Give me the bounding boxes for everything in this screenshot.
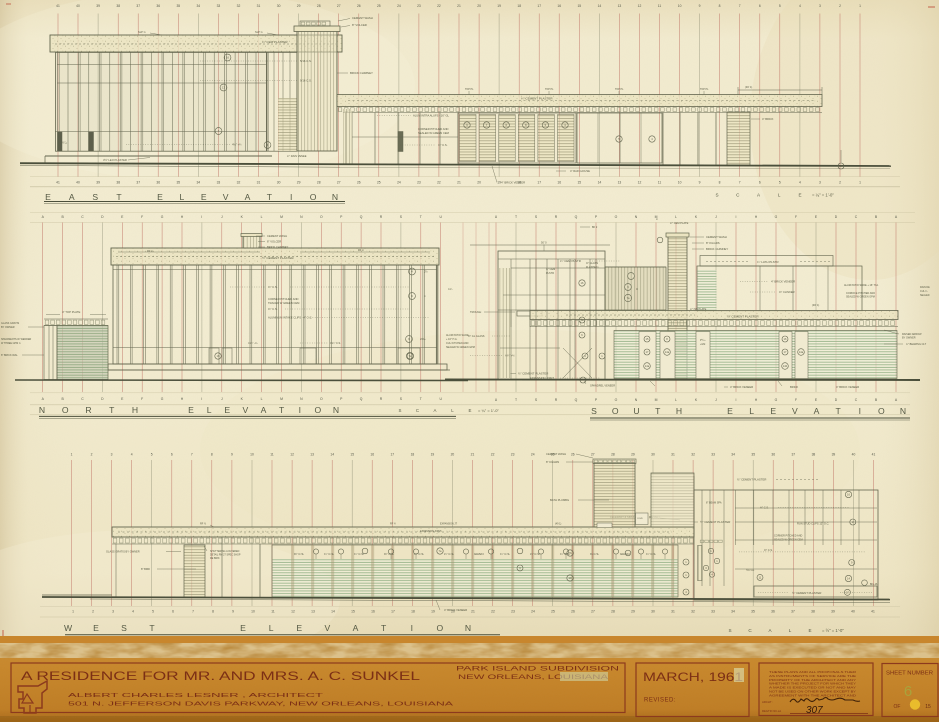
svg-text:½" CEMENT PLASTER: ½" CEMENT PLASTER — [262, 256, 294, 260]
svg-text:18: 18 — [411, 453, 415, 457]
svg-text:40: 40 — [76, 4, 80, 8]
svg-text:14a: 14a — [645, 364, 650, 368]
svg-text:11: 11 — [658, 4, 662, 8]
svg-text:5/16 C.S.: 5/16 C.S. — [300, 59, 312, 63]
svg-text:13: 13 — [310, 453, 314, 457]
svg-text:I: I — [859, 406, 861, 416]
svg-text:= ¼" = 1’-0": = ¼" = 1’-0" — [812, 193, 834, 198]
svg-text:35: 35 — [751, 453, 755, 457]
svg-text:I: I — [736, 215, 737, 219]
svg-text:¾" CEM PLASTER: ¾" CEM PLASTER — [262, 40, 288, 44]
svg-text:40: 40 — [852, 453, 856, 457]
svg-text:¼" ISN PLATE: ¼" ISN PLATE — [690, 308, 707, 311]
svg-text:14: 14 — [331, 610, 335, 614]
svg-text:9: 9 — [232, 610, 234, 614]
svg-text:21: 21 — [471, 610, 475, 614]
svg-text:6: 6 — [759, 181, 761, 185]
svg-text:L: L — [180, 192, 185, 202]
svg-text:E: E — [93, 623, 99, 633]
svg-text:27: 27 — [337, 4, 341, 8]
svg-text:⅜" CLINKER: ⅜" CLINKER — [779, 290, 795, 294]
svg-text:27: 27 — [591, 610, 595, 614]
svg-text:+GM: +GM — [700, 343, 705, 346]
svg-text:G: G — [775, 215, 778, 219]
svg-text:5: 5 — [779, 4, 781, 8]
svg-text:35: 35 — [751, 610, 755, 614]
svg-text:19: 19 — [431, 453, 435, 457]
svg-text:20: 20 — [451, 453, 455, 457]
svg-text:8: 8 — [212, 610, 214, 614]
svg-text:T: T — [279, 405, 285, 415]
svg-text:14: 14 — [598, 4, 602, 8]
svg-text:20: 20 — [477, 4, 481, 8]
svg-text:4: 4 — [132, 610, 134, 614]
svg-text:¼" RAIN VENEE: ¼" RAIN VENEE — [287, 154, 307, 158]
svg-text:T: T — [515, 398, 517, 402]
svg-text:⅜" GL GLASS: ⅜" GL GLASS — [468, 334, 485, 338]
svg-text:T: T — [116, 192, 122, 202]
svg-text:38: 38 — [812, 453, 816, 457]
svg-text:O: O — [437, 623, 444, 633]
svg-text:28: 28 — [611, 453, 615, 457]
svg-text:4" TOP PLATE: 4" TOP PLATE — [62, 310, 80, 314]
svg-text:31: 31 — [671, 453, 675, 457]
svg-text:⅜" C.S.: ⅜" C.S. — [268, 307, 278, 311]
svg-text:E: E — [798, 193, 801, 198]
svg-text:4" RAIN HOUSE: 4" RAIN HOUSE — [570, 169, 590, 173]
svg-text:N: N — [465, 623, 471, 633]
svg-text:¾" C.S.: ¾" C.S. — [324, 552, 334, 556]
svg-text:307: 307 — [806, 705, 823, 716]
svg-text:E: E — [727, 406, 733, 416]
svg-text:34: 34 — [731, 453, 735, 457]
svg-text:¾¼" –¼: ¾¼" –¼ — [248, 341, 258, 345]
svg-text:J: J — [221, 397, 223, 401]
svg-text:2: 2 — [91, 453, 93, 457]
svg-text:L: L — [207, 405, 212, 415]
svg-text:A: A — [434, 408, 437, 413]
svg-text:17: 17 — [391, 610, 395, 614]
svg-text:31: 31 — [257, 4, 261, 8]
svg-text:⅜: ⅜ — [636, 288, 638, 291]
svg-text:3: 3 — [111, 453, 113, 457]
svg-text:17: 17 — [537, 181, 541, 185]
svg-text:31: 31 — [671, 610, 675, 614]
svg-text:33: 33 — [217, 181, 221, 185]
svg-text:31: 31 — [257, 181, 261, 185]
svg-text:ARCHT :: ARCHT : — [762, 700, 773, 704]
svg-text:EXPANSION JT: EXPANSION JT — [440, 523, 458, 526]
svg-text:36: 36 — [156, 181, 160, 185]
svg-text:RUN STUD CLIPS 12" O.C.: RUN STUD CLIPS 12" O.C. — [797, 522, 829, 526]
svg-text:4½" +¼: 4½" +¼ — [232, 143, 242, 147]
svg-text:⅜" C.S.: ⅜" C.S. — [294, 552, 304, 556]
svg-text:FLASHED ⁿ: FLASHED ⁿ — [586, 265, 599, 269]
svg-text:⅜ C.S.: ⅜ C.S. — [590, 552, 599, 556]
svg-text:BRICK CHIMNEY: BRICK CHIMNEY — [350, 71, 373, 75]
svg-text:T: T — [420, 215, 422, 219]
svg-text:29: 29 — [631, 453, 635, 457]
svg-text:A: A — [261, 405, 267, 415]
svg-text:13: 13 — [311, 610, 315, 614]
svg-text:37: 37 — [791, 453, 795, 457]
svg-text:2: 2 — [92, 610, 94, 614]
svg-text:GRAIN: GRAIN — [474, 552, 484, 556]
svg-text:39: 39 — [96, 181, 100, 185]
svg-text:BY OWNER: BY OWNER — [902, 337, 916, 340]
svg-text:L: L — [778, 193, 781, 198]
svg-text:F: F — [795, 398, 797, 402]
svg-text:14a: 14a — [799, 350, 804, 354]
svg-text:THESE PLANS AND ALL PROPOSALS: THESE PLANS AND ALL PROPOSALS THER — [769, 670, 856, 674]
svg-text:ALBERT CHARLES LESNER ,: ALBERT CHARLES LESNER , ARCHITECT — [68, 693, 325, 699]
svg-text:T: T — [381, 623, 387, 633]
svg-text:MARCH, 1961: MARCH, 1961 — [643, 670, 743, 684]
svg-text:SEALED: SEALED — [920, 294, 930, 297]
svg-text:25: 25 — [551, 610, 555, 614]
svg-text:BF 2: BF 2 — [592, 226, 598, 229]
svg-text:11: 11 — [270, 453, 274, 457]
svg-text:E: E — [469, 408, 472, 413]
svg-text:N: N — [332, 192, 338, 202]
svg-text:501 N. JEFFERSON DAVIS: 501 N. JEFFERSON DAVIS PARKWAY, NEW ORLE… — [68, 702, 454, 708]
svg-text:⅜" C.S.: ⅜" C.S. — [760, 506, 769, 510]
svg-text:I: I — [290, 192, 292, 202]
svg-text:SEALED W GREEN GPM: SEALED W GREEN GPM — [446, 346, 475, 349]
svg-text:BRICK CHIMNEY: BRICK CHIMNEY — [706, 247, 728, 251]
svg-text:U: U — [633, 406, 639, 416]
svg-text:8" BRICK WAL: 8" BRICK WAL — [1, 354, 18, 357]
svg-text:14a: 14a — [665, 350, 670, 354]
svg-text:BRICK: BRICK — [790, 385, 798, 389]
svg-text:I: I — [201, 215, 202, 219]
svg-text:41: 41 — [871, 610, 875, 614]
svg-text:S: S — [399, 408, 402, 413]
svg-text:30: 30 — [277, 4, 281, 8]
svg-text:NOT BE USED ON OTHER WORK EXCE: NOT BE USED ON OTHER WORK EXCEPT BY — [769, 690, 856, 694]
svg-text:32: 32 — [691, 610, 695, 614]
svg-text:E: E — [157, 192, 163, 202]
svg-text:1: 1 — [859, 181, 861, 185]
svg-text:4" BRICK VENEER: 4" BRICK VENEER — [836, 385, 859, 389]
svg-text:½" CEMENT PLASTER: ½" CEMENT PLASTER — [518, 372, 548, 376]
svg-text:E: E — [240, 623, 246, 633]
svg-text:SEALED W GREEN GPM: SEALED W GREEN GPM — [846, 296, 875, 299]
svg-text:BATH PLUMBG: BATH PLUMBG — [550, 498, 569, 502]
svg-text:T: T — [515, 215, 517, 219]
svg-text:11: 11 — [271, 610, 275, 614]
svg-text:H: H — [132, 405, 138, 415]
svg-text:J: J — [715, 398, 717, 402]
svg-text:ALUM PATIO SLIDE: ALUM PATIO SLIDE — [446, 334, 469, 337]
svg-text:19: 19 — [431, 610, 435, 614]
svg-text:17: 17 — [390, 453, 394, 457]
svg-text:⅜" C.S.: ⅜" C.S. — [764, 548, 773, 552]
svg-text:9: 9 — [699, 181, 701, 185]
svg-text:15: 15 — [577, 181, 581, 185]
svg-text:34: 34 — [196, 4, 200, 8]
svg-text:4: 4 — [799, 181, 801, 185]
svg-text:Q: Q — [360, 397, 363, 401]
svg-text:SPANDREL VENEER: SPANDREL VENEER — [590, 384, 615, 388]
svg-text:RF ½: RF ½ — [200, 522, 207, 526]
svg-text:23: 23 — [511, 453, 515, 457]
svg-text:24: 24 — [397, 4, 401, 8]
svg-text:29: 29 — [297, 181, 301, 185]
svg-text:2: 2 — [839, 181, 841, 185]
svg-text:G: G — [161, 397, 164, 401]
svg-text:9/16 C.S.: 9/16 C.S. — [300, 79, 312, 83]
svg-text:39: 39 — [96, 4, 100, 8]
svg-text:A MADE IS EXECUTED OR NOT AND: A MADE IS EXECUTED OR NOT AND MAY — [769, 686, 856, 690]
svg-text:12: 12 — [291, 610, 295, 614]
svg-text:16: 16 — [371, 610, 375, 614]
svg-text:7: 7 — [191, 453, 193, 457]
svg-text:5: 5 — [152, 610, 154, 614]
svg-text:⅜" GLASS: ⅜" GLASS — [586, 262, 598, 265]
svg-text:5: 5 — [151, 453, 153, 457]
svg-text:40: 40 — [851, 610, 855, 614]
svg-text:CUL ¼: CUL ¼ — [920, 290, 928, 293]
svg-text:4" BRICK: 4" BRICK — [762, 117, 774, 121]
svg-text:CORNER PITCHED AND: CORNER PITCHED AND — [418, 127, 449, 131]
svg-text:WHETHER THE PROJECT FOR WHICH: WHETHER THE PROJECT FOR WHICH THEY — [769, 682, 856, 686]
svg-text:¼" C.S.: ¼" C.S. — [444, 552, 454, 556]
svg-text:36: 36 — [156, 4, 160, 8]
svg-text:BY OWNER: BY OWNER — [1, 326, 15, 329]
svg-text:22: 22 — [491, 610, 495, 614]
svg-text:(49' 1): (49' 1) — [812, 303, 819, 307]
svg-text:RF ¼: RF ¼ — [147, 250, 154, 253]
svg-text:6: 6 — [759, 4, 761, 8]
svg-text:2: 2 — [839, 4, 841, 8]
svg-text:¼" CEM PLSTR: ¼" CEM PLSTR — [560, 259, 581, 263]
svg-text:39: 39 — [832, 453, 836, 457]
svg-text:37: 37 — [791, 610, 795, 614]
svg-text:30: 30 — [651, 453, 655, 457]
svg-text:G: G — [161, 215, 164, 219]
svg-text:26: 26 — [571, 453, 575, 457]
svg-text:F: F — [795, 215, 797, 219]
svg-text:L: L — [749, 406, 754, 416]
svg-text:E: E — [201, 192, 207, 202]
svg-text:V: V — [325, 623, 331, 633]
svg-text:21: 21 — [471, 453, 475, 457]
svg-text:8" VOLCER: 8" VOLCER — [352, 23, 367, 27]
svg-text:14: 14 — [330, 453, 334, 457]
svg-text:+ 16" H.A.: + 16" H.A. — [446, 338, 458, 341]
svg-text:TOP PL: TOP PL — [700, 88, 709, 91]
svg-text:50' 0: 50' 0 — [541, 241, 547, 245]
svg-text:½" CEMENT PLASTER: ½" CEMENT PLASTER — [792, 591, 821, 595]
svg-text:4" BRICK VENEER: 4" BRICK VENEER — [501, 181, 525, 185]
svg-text:16: 16 — [557, 181, 561, 185]
svg-text:12: 12 — [638, 4, 642, 8]
svg-text:T: T — [655, 406, 661, 416]
svg-text:29: 29 — [297, 4, 301, 8]
svg-text:¼" CEM: ¼" CEM — [546, 268, 555, 271]
svg-text:L: L — [675, 215, 677, 219]
svg-text:⅜" C.S.: ⅜" C.S. — [268, 285, 278, 289]
svg-text:Q: Q — [575, 398, 578, 402]
svg-text:CEMENT WASH: CEMENT WASH — [546, 452, 566, 456]
svg-text:26: 26 — [571, 610, 575, 614]
svg-text:41: 41 — [872, 453, 876, 457]
svg-text:SPECIMENTS W. WENDER: SPECIMENTS W. WENDER — [1, 338, 32, 341]
svg-text:37: 37 — [136, 181, 140, 185]
svg-text:A: A — [353, 623, 359, 633]
svg-text:T: T — [267, 192, 273, 202]
svg-text:8" KILGRS: 8" KILGRS — [706, 241, 720, 245]
svg-text:SHEET NUMBER: SHEET NUMBER — [886, 671, 933, 677]
svg-text:8" KILGRN: 8" KILGRN — [546, 460, 559, 464]
svg-text:SLP ¼: SLP ¼ — [138, 30, 147, 34]
svg-text:13: 13 — [618, 4, 622, 8]
svg-text:PLSTR: PLSTR — [546, 272, 554, 275]
svg-text:TROUGH: TROUGH — [470, 310, 481, 314]
svg-text:GRAIN: GRAIN — [620, 552, 630, 556]
svg-text:26: 26 — [357, 181, 361, 185]
svg-text:O: O — [615, 215, 618, 219]
svg-text:15: 15 — [351, 610, 355, 614]
svg-text:½" CEMENT PLASTER: ½" CEMENT PLASTER — [737, 478, 766, 482]
svg-text:REVISED:: REVISED: — [644, 698, 676, 704]
svg-text:28: 28 — [317, 4, 321, 8]
svg-text:23: 23 — [511, 610, 515, 614]
svg-text:F: F — [141, 397, 143, 401]
svg-text:M: M — [655, 398, 658, 402]
svg-text:12: 12 — [638, 181, 642, 185]
svg-text:33: 33 — [711, 610, 715, 614]
svg-text:7: 7 — [739, 181, 741, 185]
svg-text:11: 11 — [658, 181, 662, 185]
svg-text:V: V — [223, 192, 229, 202]
svg-text:¾" C.S.: ¾" C.S. — [500, 552, 510, 556]
svg-text:8" BEAM SPA: 8" BEAM SPA — [706, 502, 722, 505]
svg-text:4" BRICK VENEER: 4" BRICK VENEER — [444, 608, 467, 612]
svg-text:W THREE GPM ¾: W THREE GPM ¾ — [1, 342, 22, 345]
svg-text:24: 24 — [531, 453, 535, 457]
svg-text:TRACED W GREEN CEM: TRACED W GREEN CEM — [268, 301, 300, 305]
svg-text:30: 30 — [651, 610, 655, 614]
svg-text:⅜" C.S.: ⅜" C.S. — [384, 552, 394, 556]
svg-text:TOP PL: TOP PL — [615, 88, 624, 91]
svg-text:32: 32 — [691, 453, 695, 457]
svg-text:CEMENT WASH: CEMENT WASH — [267, 234, 287, 238]
svg-text:23: 23 — [417, 4, 421, 8]
svg-text:22: 22 — [437, 181, 441, 185]
svg-text:13: 13 — [618, 181, 622, 185]
svg-text:PROPERTY OF THE ARCHITECT AND: PROPERTY OF THE ARCHITECT AND ANY — [769, 678, 856, 682]
svg-text:9: 9 — [699, 4, 701, 8]
svg-text:S: S — [591, 406, 597, 416]
svg-text:C: C — [416, 408, 419, 413]
svg-text:19: 19 — [497, 4, 501, 8]
svg-text:25: 25 — [377, 181, 381, 185]
svg-text:15: 15 — [925, 704, 931, 710]
svg-text:34: 34 — [196, 181, 200, 185]
svg-text:⅜¼" C.S.: ⅜¼" C.S. — [330, 341, 341, 345]
svg-text:OF: OF — [894, 704, 901, 710]
svg-text:32: 32 — [237, 181, 241, 185]
svg-text:7: 7 — [739, 4, 741, 8]
svg-text:8: 8 — [211, 453, 213, 457]
svg-text:Q: Q — [575, 215, 578, 219]
svg-text:W: W — [64, 623, 73, 633]
svg-text:J: J — [715, 215, 717, 219]
svg-text:2⅜¼: 2⅜¼ — [420, 338, 426, 341]
svg-text:21: 21 — [457, 181, 461, 185]
svg-text:TOP PL: TOP PL — [545, 88, 554, 91]
svg-text:8" VOLCER: 8" VOLCER — [267, 240, 281, 244]
svg-text:24: 24 — [397, 181, 401, 185]
svg-text:3: 3 — [819, 4, 821, 8]
svg-text:RE BRIK: RE BRIK — [210, 557, 220, 560]
svg-text:CEMENT WASH: CEMENT WASH — [352, 16, 373, 20]
svg-text:10: 10 — [678, 181, 682, 185]
svg-text:E: E — [45, 192, 51, 202]
svg-text:20: 20 — [477, 181, 481, 185]
svg-text:AS INSTRUMENTS OF SERVICE ARE: AS INSTRUMENTS OF SERVICE ARE THE — [769, 674, 856, 678]
svg-text:A: A — [69, 192, 75, 202]
svg-text:39: 39 — [831, 610, 835, 614]
svg-text:S: S — [92, 192, 98, 202]
svg-text:22: 22 — [491, 453, 495, 457]
svg-text:RF ¼: RF ¼ — [390, 523, 397, 526]
svg-text:V: V — [792, 406, 798, 416]
svg-text:6: 6 — [171, 453, 173, 457]
svg-text:P½ +: P½ + — [700, 338, 706, 342]
svg-text:41: 41 — [56, 181, 60, 185]
svg-text:28: 28 — [317, 181, 321, 185]
svg-text:1: 1 — [859, 4, 861, 8]
svg-text:¾" C.S.: ¾" C.S. — [646, 552, 656, 556]
svg-text:BRICK CHIMNEY: BRICK CHIMNEY — [267, 245, 289, 249]
svg-text:A RESIDENCE FOR MR. AND M: A RESIDENCE FOR MR. AND MRS. A. C. SUNKE… — [21, 669, 420, 683]
svg-text:10: 10 — [251, 610, 255, 614]
svg-text:T: T — [835, 406, 841, 416]
svg-text:O: O — [612, 406, 619, 416]
svg-text:RF ¼: RF ¼ — [358, 249, 365, 252]
svg-text:27: 27 — [591, 453, 595, 457]
svg-text:M: M — [280, 397, 283, 401]
svg-text:6: 6 — [172, 610, 174, 614]
svg-text:½"¿: ½"¿ — [62, 141, 67, 145]
svg-text:R: R — [85, 405, 91, 415]
svg-text:N: N — [900, 406, 906, 416]
svg-text:38: 38 — [811, 610, 815, 614]
svg-text:M: M — [280, 215, 283, 219]
svg-text:T: T — [109, 405, 115, 415]
svg-text:25: 25 — [377, 4, 381, 8]
svg-text:22: 22 — [437, 4, 441, 8]
svg-text:G: G — [775, 398, 778, 402]
svg-text:16: 16 — [370, 453, 374, 457]
svg-text:O: O — [315, 405, 322, 415]
svg-text:24: 24 — [531, 610, 535, 614]
svg-text:35: 35 — [176, 181, 180, 185]
svg-text:8: 8 — [719, 4, 721, 8]
svg-text:= ½" = 1’-0": = ½" = 1’-0" — [822, 628, 844, 633]
svg-text:½" CEMENT PLASTER: ½" CEMENT PLASTER — [727, 315, 759, 319]
svg-text:¾" LATH PLSTR: ¾" LATH PLSTR — [757, 260, 779, 264]
svg-text:10: 10 — [678, 4, 682, 8]
svg-text:33: 33 — [217, 4, 221, 8]
svg-text:RAIN DE: RAIN DE — [920, 286, 930, 289]
svg-text:J: J — [221, 215, 223, 219]
svg-text:¾" CEMENT PLASTER: ¾" CEMENT PLASTER — [521, 97, 553, 101]
svg-text:36: 36 — [771, 610, 775, 614]
